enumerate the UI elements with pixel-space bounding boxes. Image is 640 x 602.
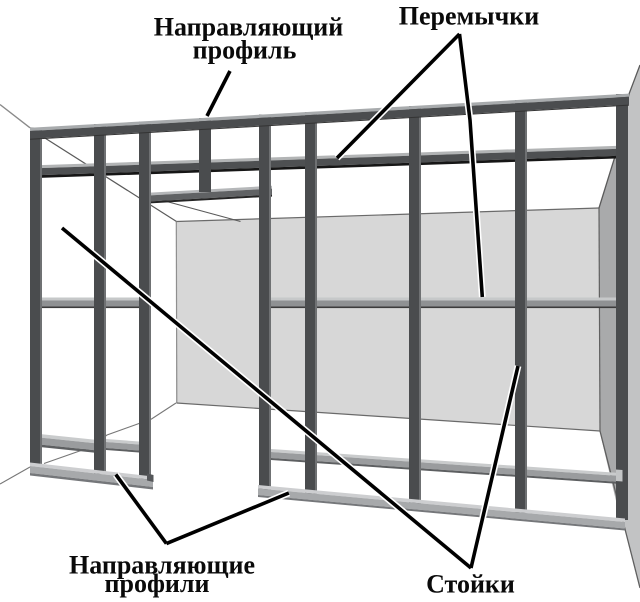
svg-text:Стойки: Стойки [426, 570, 515, 599]
svg-text:профиль: профиль [193, 36, 297, 65]
svg-text:Перемычки: Перемычки [399, 2, 539, 31]
svg-text:профили: профили [105, 569, 210, 598]
